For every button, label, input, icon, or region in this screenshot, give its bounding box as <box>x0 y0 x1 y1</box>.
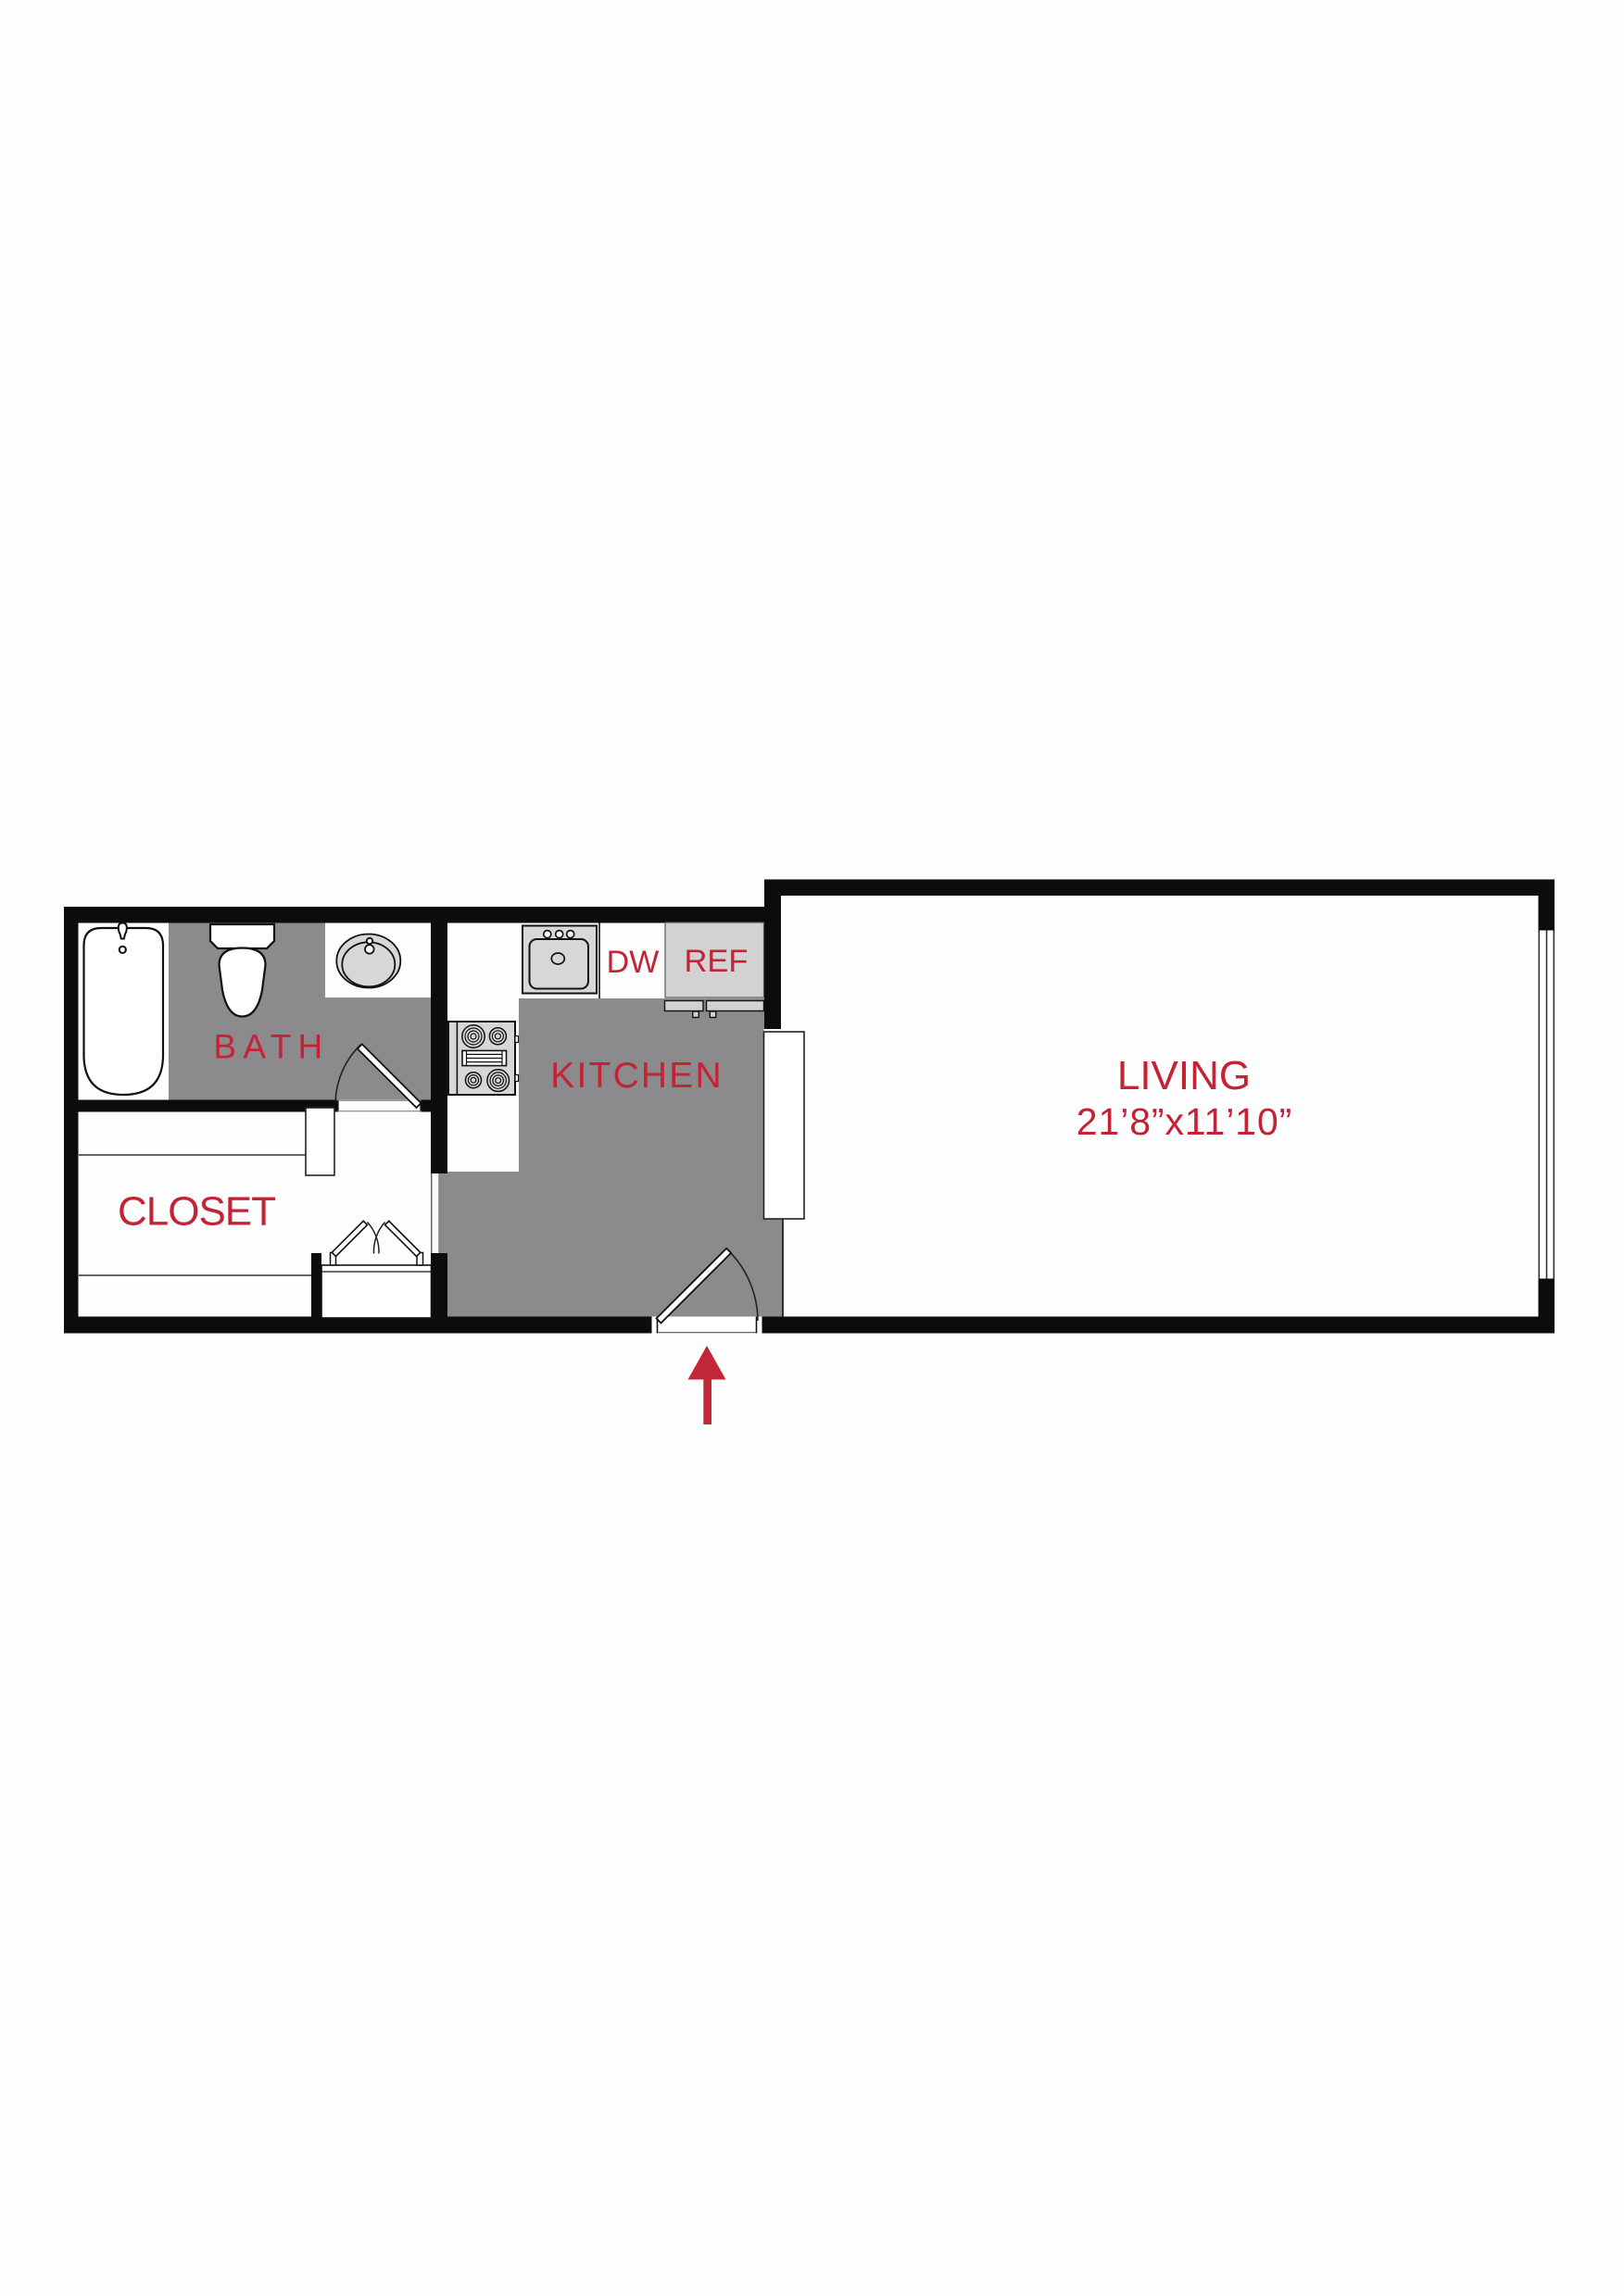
svg-text:CLOSET: CLOSET <box>118 1189 275 1235</box>
svg-text:21’8”x11’10”: 21’8”x11’10” <box>1076 1100 1292 1143</box>
svg-text:REF: REF <box>685 944 749 979</box>
svg-text:DW: DW <box>607 945 660 980</box>
svg-text:LIVING: LIVING <box>1117 1053 1251 1098</box>
svg-text:BATH: BATH <box>213 1028 329 1066</box>
svg-text:KITCHEN: KITCHEN <box>550 1056 724 1096</box>
